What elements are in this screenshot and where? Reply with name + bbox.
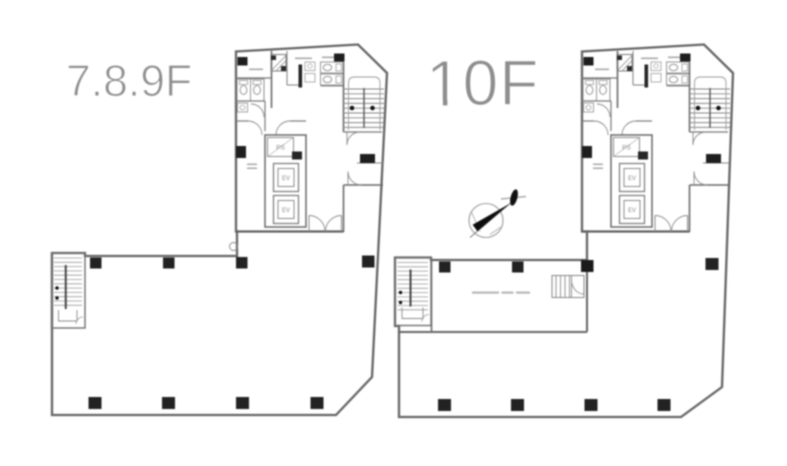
svg-text:EV: EV [628, 176, 636, 182]
svg-text:PS: PS [622, 145, 631, 152]
svg-text:PS: PS [276, 145, 285, 152]
svg-text:7.8.9F: 7.8.9F [66, 57, 192, 106]
svg-text:EV: EV [282, 208, 290, 214]
svg-text:EV: EV [282, 176, 290, 182]
svg-text:EV: EV [628, 208, 636, 214]
svg-text:10F: 10F [426, 47, 539, 119]
